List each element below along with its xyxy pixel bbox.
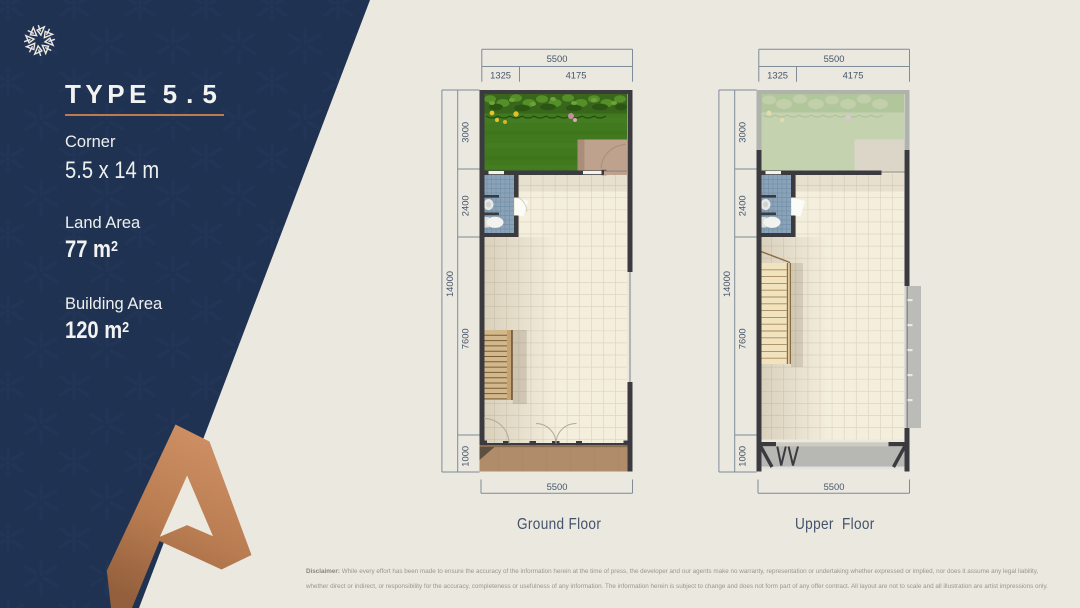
- svg-text:7600: 7600: [460, 328, 471, 349]
- svg-text:1000: 1000: [460, 446, 471, 467]
- svg-text:4175: 4175: [566, 70, 587, 81]
- svg-text:5500: 5500: [824, 481, 845, 492]
- svg-text:3000: 3000: [460, 122, 471, 143]
- svg-text:1325: 1325: [767, 70, 788, 81]
- svg-text:2400: 2400: [460, 195, 471, 216]
- svg-text:4175: 4175: [843, 70, 864, 81]
- svg-text:5500: 5500: [824, 53, 845, 64]
- svg-text:5500: 5500: [547, 53, 568, 64]
- svg-text:14000: 14000: [721, 271, 732, 297]
- svg-text:3000: 3000: [737, 122, 748, 143]
- svg-text:5500: 5500: [547, 481, 568, 492]
- svg-text:1000: 1000: [737, 446, 748, 467]
- svg-text:7600: 7600: [737, 328, 748, 349]
- svg-text:2400: 2400: [737, 195, 748, 216]
- svg-text:14000: 14000: [444, 271, 455, 297]
- svg-text:1325: 1325: [490, 70, 511, 81]
